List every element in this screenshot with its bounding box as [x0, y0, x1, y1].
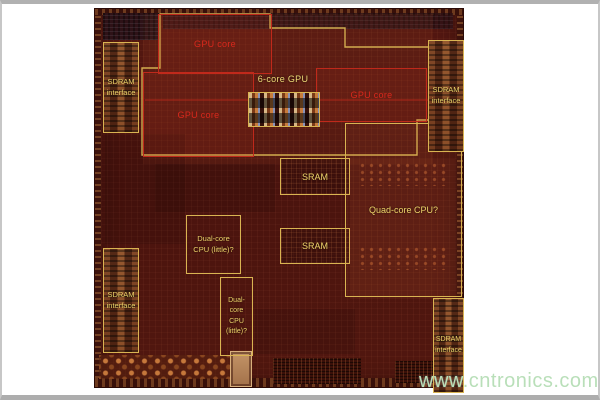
sdram-interface-bottom-left-box: SDRAM interface	[103, 248, 139, 353]
dual-core-tall-line3: CPU	[226, 317, 247, 327]
dual-core-tall-line1: Dual-	[226, 296, 247, 306]
gpu-core-right-label: GPU core	[351, 90, 393, 100]
gpu-core-left-label: GPU core	[178, 110, 220, 120]
chip-die-photo: GPU core GPU core GPU core 6-core GPU SR…	[95, 9, 463, 387]
sdram-interface-top-right-box: SDRAM interface	[428, 40, 464, 152]
dual-core-wide-line1: Dual-core	[193, 234, 233, 245]
sram-top-box: SRAM	[280, 158, 350, 195]
six-core-gpu-label: 6-core GPU	[243, 74, 323, 84]
gpu-core-top-label: GPU core	[194, 39, 236, 49]
quad-core-cpu-label: Quad-core CPU?	[369, 205, 438, 215]
gpu-core-right-box: GPU core	[316, 68, 427, 122]
gpu-core-left-box: GPU core	[143, 72, 254, 157]
annotated-die-screenshot: GPU core GPU core GPU core 6-core GPU SR…	[0, 0, 600, 400]
sdram-bl-line2: interface	[107, 301, 136, 312]
sdram-bl-line1: SDRAM	[107, 290, 136, 301]
dual-core-wide-line2: CPU (little)?	[193, 245, 233, 256]
sdram-br-line2: interface	[435, 346, 462, 356]
sdram-br-line1: SDRAM	[435, 335, 462, 345]
dot-cluster	[358, 246, 450, 270]
dual-core-cpu-tall-box: Dual- core CPU (little)?	[220, 277, 253, 356]
dual-core-tall-line4: (little)?	[226, 327, 247, 337]
sram-bottom-label: SRAM	[302, 241, 328, 251]
sram-bottom-box: SRAM	[280, 228, 350, 264]
gpu-core-top-box: GPU core	[158, 14, 272, 74]
sram-top-label: SRAM	[302, 172, 328, 182]
sdram-tl-line2: interface	[107, 88, 136, 99]
dual-core-cpu-wide-box: Dual-core CPU (little)?	[186, 215, 241, 274]
sdram-interface-top-left-box: SDRAM interface	[103, 42, 139, 133]
sdram-tl-line1: SDRAM	[107, 77, 136, 88]
watermark-text: www.cntronics.com	[419, 370, 599, 393]
dot-cluster	[358, 162, 450, 186]
sdram-tr-line2: interface	[432, 96, 461, 107]
sdram-tr-line1: SDRAM	[432, 85, 461, 96]
dual-core-tall-line2: core	[226, 306, 247, 316]
test-structure-box	[248, 92, 320, 127]
